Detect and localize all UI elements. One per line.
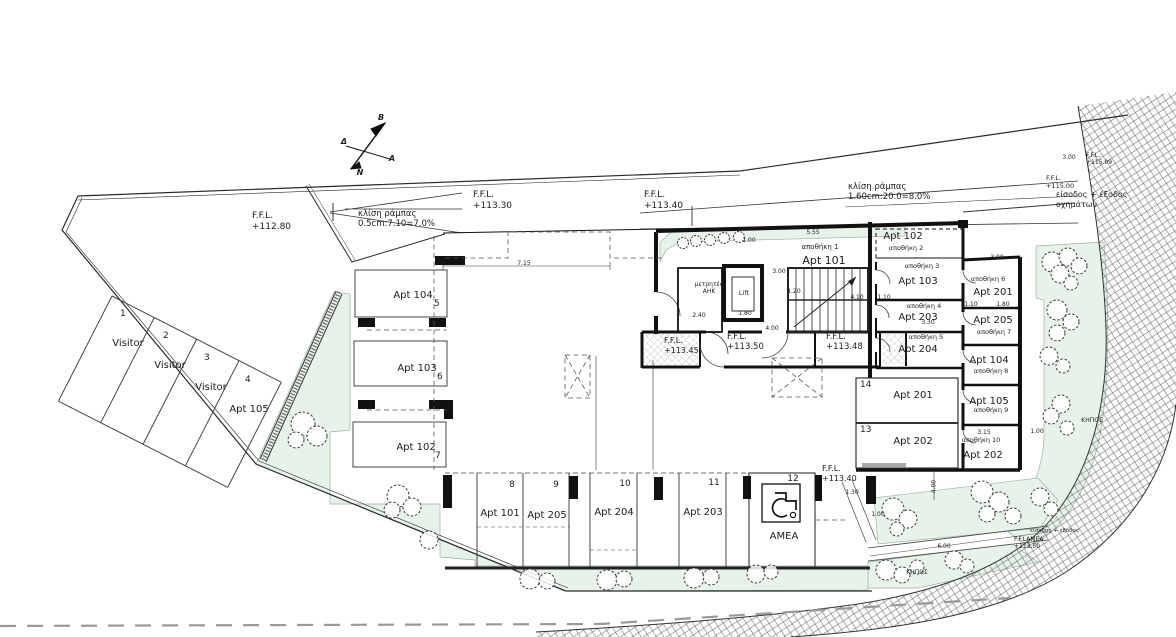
stall-6-number: 6 — [437, 372, 443, 383]
stall-11-number: 11 — [708, 478, 719, 489]
stall-9-label: Apt 205 — [527, 510, 566, 522]
dim-label: 3.15 — [977, 429, 990, 436]
pedestrian-entry-label: είσοδος + έξοδος — [1030, 528, 1079, 535]
store-1-label: αποθήκη 1 — [801, 243, 838, 251]
dim-label: 1.20 — [787, 288, 800, 295]
stall-10-number: 10 — [619, 479, 630, 490]
store-apt202-label: Apt 202 — [963, 450, 1002, 462]
store-4-label: αποθήκη 4 — [907, 303, 941, 311]
dim-label: 1.10 — [877, 294, 890, 301]
garden-label-south: ΚΗΠΟΣ — [906, 569, 927, 576]
stall-7-number: 7 — [435, 451, 441, 462]
stall-6-label: Apt 103 — [397, 363, 436, 375]
dim-label: 3.30 — [921, 319, 934, 326]
level-site: F.F.L.+112.80 — [252, 211, 291, 233]
store-apt201-label: Apt 201 — [973, 287, 1012, 299]
lift-label: Lift — [739, 290, 749, 298]
stall-7-label: Apt 102 — [396, 442, 435, 454]
level-lobby-east: F.F.L.+113.48 — [826, 332, 863, 352]
store-7-label: αποθήκη 7 — [977, 329, 1011, 337]
visitor-1-label: Visitor — [112, 338, 144, 350]
level-street: F.F.L.+115.00 — [1046, 175, 1074, 191]
store-5-label: αποθήκη 5 — [909, 334, 943, 342]
dim-label: 3.00 — [1062, 154, 1075, 161]
stall-5-label: Apt 104 — [393, 290, 432, 302]
level-garage-west: F.F.L.+113.30 — [473, 190, 512, 212]
garden-label-east: ΚΗΠΟΣ — [1081, 417, 1102, 424]
visitor-parking-stalls — [58, 296, 281, 487]
dim-label: 1.30 — [845, 489, 858, 496]
level-ramp-amea: F.F.LAMEA+113.50 — [1014, 536, 1043, 550]
stall-11-label: Apt 203 — [683, 507, 722, 519]
store-3-label: αποθήκη 3 — [905, 263, 939, 271]
visitor-3-number: 3 — [204, 353, 210, 364]
dim-label: 1.10 — [964, 301, 977, 308]
dim-label: 4.10 — [850, 294, 863, 301]
dim-label: 4.00 — [930, 480, 937, 493]
dim-label: 6.00 — [937, 543, 950, 550]
compass-west-letter: Δ — [341, 137, 347, 147]
visitor-4-number: 4 — [245, 375, 251, 386]
visitor-4-label: Apt 105 — [229, 404, 268, 416]
compass-north-letter: B — [378, 113, 384, 123]
store-10-label: αποθήκη 10 — [962, 437, 1001, 445]
stall-5-number: 5 — [434, 299, 440, 310]
stall-14-number: 14 — [860, 380, 871, 391]
meters-label: μετρητέςΑΗΚ — [695, 281, 724, 295]
compass-icon — [346, 123, 390, 169]
meters-room — [678, 268, 722, 332]
store-9-label: αποθήκη 9 — [974, 407, 1008, 415]
dim-label: 1.00 — [1030, 428, 1043, 435]
level-street-high: F.F.L.+115.09 — [1086, 152, 1112, 166]
store-apt204-label: Apt 204 — [898, 344, 937, 356]
visitor-3-label: Visitor — [195, 382, 227, 394]
dim-label: 5.55 — [806, 229, 819, 236]
dim-label: 1.80 — [738, 310, 751, 317]
store-8-label: αποθήκη 8 — [974, 368, 1008, 376]
stall-10-label: Apt 204 — [594, 507, 633, 519]
stall-8-label: Apt 101 — [480, 508, 519, 520]
dim-label: 7.15 — [517, 260, 530, 267]
stall-12-label: AMEA — [770, 531, 799, 543]
stall-8-number: 8 — [509, 480, 515, 491]
ramp-note-main: κλίση ράμπας1.60cm:20.0=8.0% — [848, 182, 930, 202]
stall-14-label: Apt 201 — [893, 390, 932, 402]
level-lobby-west: F.F.L.+113.45 — [664, 336, 699, 355]
apt-101-store-label: Apt 101 — [802, 254, 845, 267]
stall-9-number: 9 — [553, 480, 559, 491]
compass-east-letter: A — [389, 154, 395, 164]
vehicle-entry-label: είσοδος + έξοδοςοχημάτων — [1056, 190, 1127, 209]
level-lobby: F.F.L.+113.50 — [727, 332, 764, 352]
visitor-1-number: 1 — [120, 309, 126, 320]
dim-label: 1.80 — [996, 301, 1009, 308]
store-2-label: αποθήκη 2 — [889, 245, 923, 253]
dim-label: 3.00 — [990, 254, 1003, 261]
visitor-2-label: Visitor — [154, 360, 186, 372]
dim-label: 1.00 — [742, 237, 755, 244]
level-garage-east: F.F.L.+113.40 — [644, 190, 683, 212]
store-apt104-label: Apt 104 — [969, 355, 1008, 367]
dim-label: 4.00 — [765, 325, 778, 332]
site-floor-plan: F.F.L.+112.80 F.F.L.+113.30 F.F.L.+113.4… — [0, 0, 1176, 637]
store-6-label: αποθήκη 6 — [971, 276, 1005, 284]
store-apt102-label: Apt 102 — [883, 231, 922, 243]
store-apt205-label: Apt 205 — [973, 315, 1012, 327]
store-apt103-label: Apt 103 — [898, 276, 937, 288]
ramp-note-west: κλίση ράμπας0.5cm:7.10=7.0% — [358, 209, 435, 229]
compass-south-letter: N — [357, 168, 364, 178]
dim-label: 2.40 — [692, 312, 705, 319]
dim-label: 3.00 — [772, 268, 785, 275]
stall-13-label: Apt 202 — [893, 436, 932, 448]
stall-13-number: 13 — [860, 425, 871, 436]
stall-12-number: 12 — [787, 474, 798, 485]
level-amea: F.F.L.+113.40 — [822, 464, 857, 483]
dim-label: 1.00 — [871, 511, 884, 518]
wheelchair-icon — [762, 484, 800, 522]
visitor-2-number: 2 — [163, 331, 169, 342]
